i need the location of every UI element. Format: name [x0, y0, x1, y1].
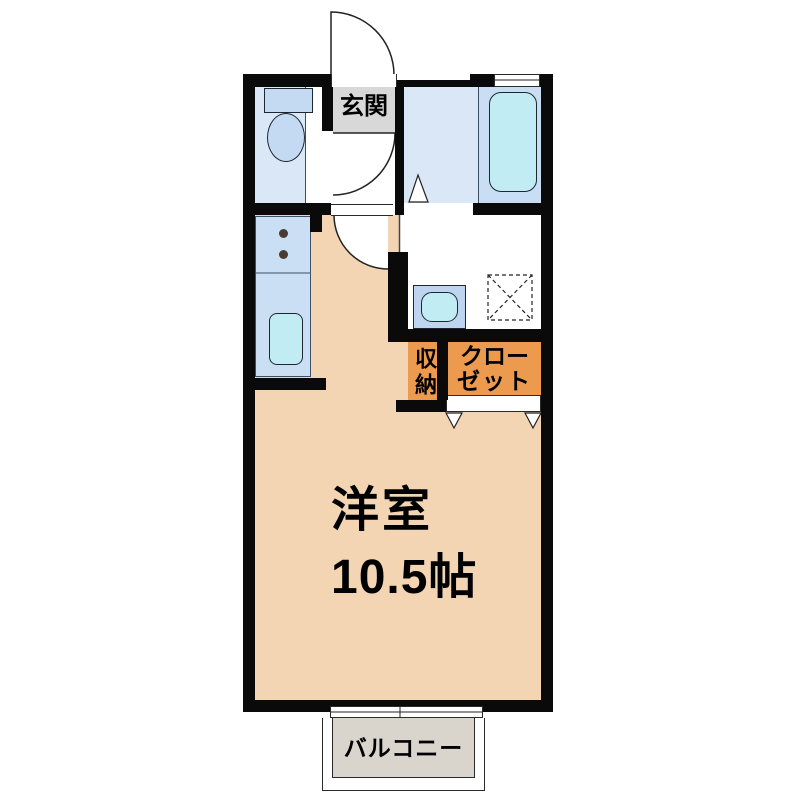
- closet-door-pivot-icon: [525, 413, 541, 428]
- closet-label-line2: ゼット: [448, 368, 541, 394]
- symbol-layer: [0, 0, 800, 800]
- floor-plan: 玄関 収納 クロー ゼット 洋室 10.5帖 バルコニー: [0, 0, 800, 800]
- main-room-name: 洋室: [331, 483, 433, 538]
- washing-machine-space-icon: [488, 275, 532, 320]
- entrance-label: 玄関: [333, 93, 395, 121]
- main-room-size: 10.5帖: [331, 550, 477, 605]
- closet-label-line1: クロー: [448, 343, 541, 369]
- closet-door-pivot-icon: [446, 413, 462, 428]
- balcony-label: バルコニー: [332, 735, 475, 761]
- bathroom-folding-door-icon: [409, 175, 428, 202]
- storage-label: 収納: [408, 345, 437, 401]
